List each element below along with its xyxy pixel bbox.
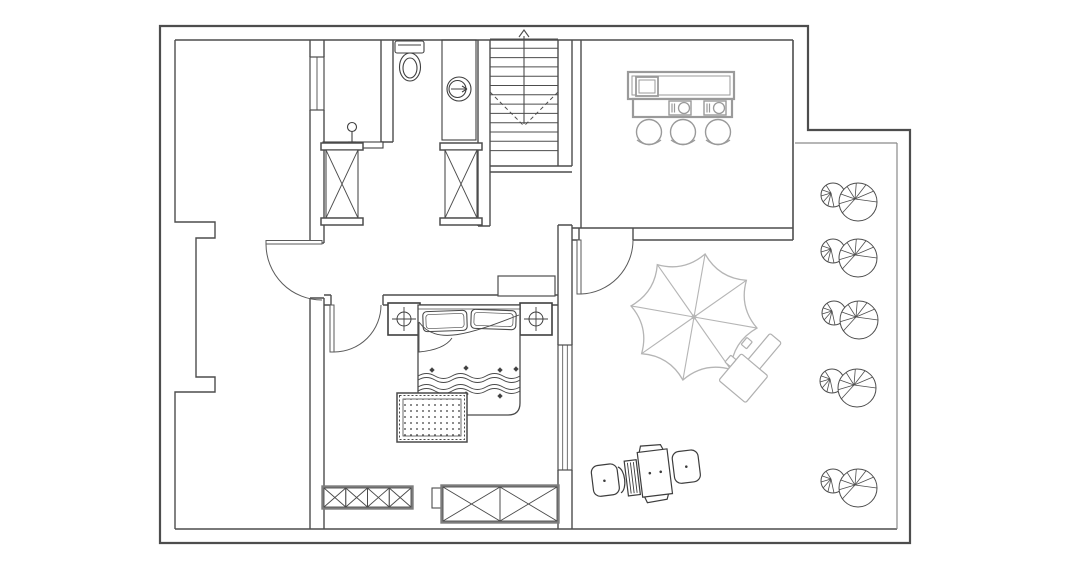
bar-counter — [628, 72, 734, 145]
wardrobes — [323, 486, 559, 523]
closet-column-right — [440, 143, 482, 225]
rug — [397, 393, 467, 442]
left-room-inner-face — [175, 40, 215, 529]
washer-drum — [447, 77, 471, 101]
recliner-chair — [589, 439, 703, 509]
laundry-cabinet — [442, 40, 476, 140]
pillow — [471, 309, 517, 330]
bar-stools — [637, 120, 731, 145]
floor-plan — [0, 0, 1074, 576]
stair-center-rail — [519, 30, 529, 124]
closet-columns — [321, 143, 482, 225]
pillow — [423, 310, 468, 332]
recliner-seat — [637, 449, 672, 497]
bedroom — [323, 276, 559, 523]
staircase — [490, 30, 558, 151]
stair-direction-arrow — [519, 30, 529, 37]
window-left-wall — [310, 57, 324, 110]
hall-shelf — [498, 276, 555, 296]
door-bedroom — [330, 305, 381, 352]
toilet — [395, 41, 424, 81]
floor-plan-page — [0, 0, 1074, 576]
door-left-room — [266, 241, 322, 301]
window-bedroom-east — [558, 345, 572, 470]
nightstand-left — [388, 303, 420, 335]
trees — [820, 183, 878, 507]
washbasin-tap — [348, 123, 357, 143]
nightstand-right — [520, 303, 552, 335]
closet-column-left — [321, 143, 363, 225]
door-terrace — [577, 240, 633, 294]
bathroom — [323, 40, 476, 148]
bar-sink — [636, 77, 658, 96]
